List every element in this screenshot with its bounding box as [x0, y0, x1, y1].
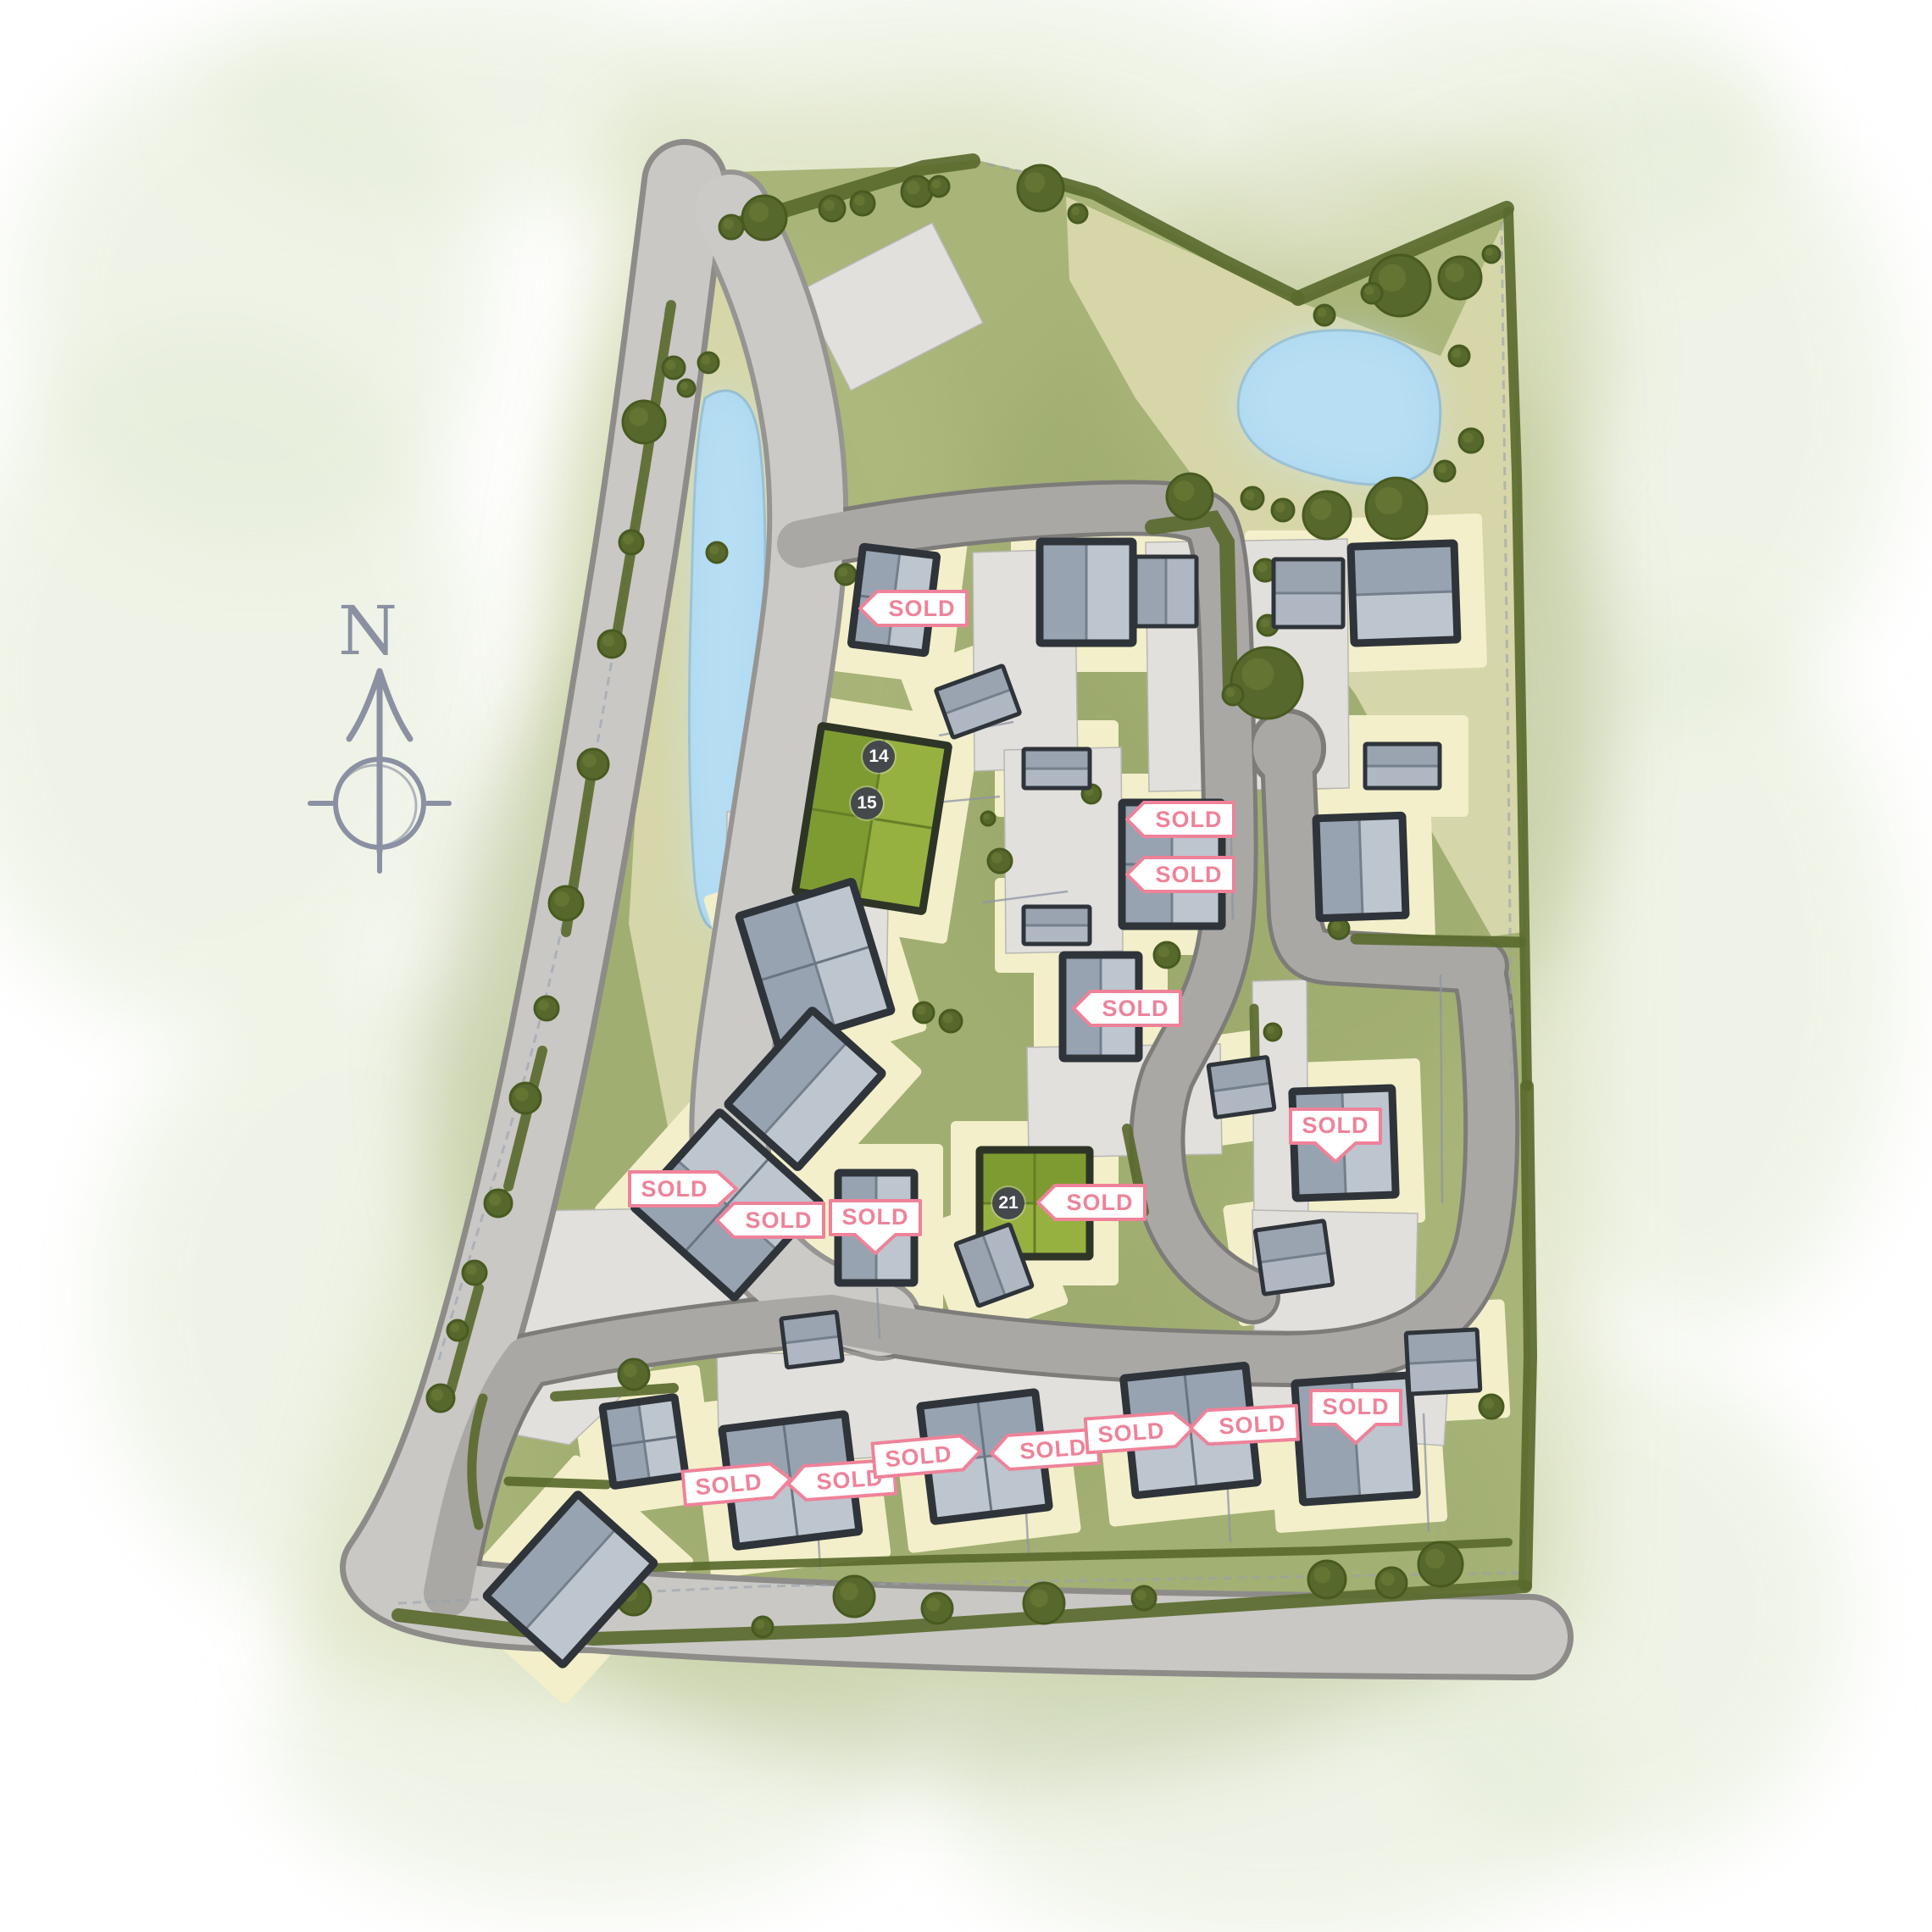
- garage-building: [1024, 907, 1090, 944]
- house-building: [1040, 541, 1133, 643]
- plot-badge-14[interactable]: 14: [863, 741, 895, 773]
- garage-building: [1406, 1330, 1480, 1394]
- sold-marker: SOLD: [1125, 856, 1235, 893]
- site-plan: N SOLDSOLDSOLDSOLDSOLDSOLDSOLDSOLDSOLDSO…: [0, 0, 1932, 1932]
- garage-building: [1365, 744, 1440, 788]
- sold-marker-label: SOLD: [1125, 801, 1235, 838]
- garage-building: [1024, 749, 1090, 788]
- sold-marker-label: SOLD: [1188, 1404, 1300, 1447]
- hedge: [1525, 1086, 1530, 1585]
- sold-marker-label: SOLD: [1309, 1389, 1402, 1424]
- house-building: [1316, 815, 1406, 918]
- sold-marker: SOLD: [1309, 1389, 1402, 1445]
- sold-marker: SOLD: [829, 1199, 922, 1255]
- sold-marker-label: SOLD: [858, 590, 969, 627]
- garage-building: [1274, 559, 1343, 627]
- house-building: [1351, 543, 1457, 643]
- sold-marker: SOLD: [1188, 1404, 1300, 1447]
- garage-building: [1208, 1057, 1274, 1117]
- sold-marker-label: SOLD: [1289, 1108, 1382, 1143]
- house-building: [602, 1396, 686, 1485]
- site-plan-canvas: N: [0, 0, 1932, 1932]
- sold-marker: SOLD: [1289, 1108, 1382, 1163]
- sold-marker-label: SOLD: [1084, 1410, 1196, 1455]
- garage-building: [781, 1312, 843, 1368]
- sold-marker: SOLD: [1072, 990, 1182, 1027]
- garage-building: [1255, 1221, 1333, 1295]
- sold-marker: SOLD: [1036, 1184, 1146, 1221]
- sold-marker: SOLD: [1084, 1410, 1196, 1455]
- compass-north-label: N: [338, 591, 397, 670]
- sold-marker-label: SOLD: [829, 1199, 922, 1235]
- sold-marker: SOLD: [1125, 801, 1235, 838]
- plot-badge-21[interactable]: 21: [992, 1187, 1024, 1219]
- sold-marker: SOLD: [858, 590, 969, 627]
- hedge: [508, 1481, 607, 1485]
- garage-building: [1135, 557, 1196, 626]
- sold-marker-label: SOLD: [1036, 1184, 1146, 1221]
- sold-marker-label: SOLD: [1125, 856, 1235, 893]
- hedge: [1356, 939, 1521, 942]
- sold-marker-label: SOLD: [715, 1202, 825, 1239]
- plot-badge-15[interactable]: 15: [851, 787, 883, 819]
- sold-marker: SOLD: [715, 1202, 825, 1239]
- sold-marker-label: SOLD: [1072, 990, 1182, 1027]
